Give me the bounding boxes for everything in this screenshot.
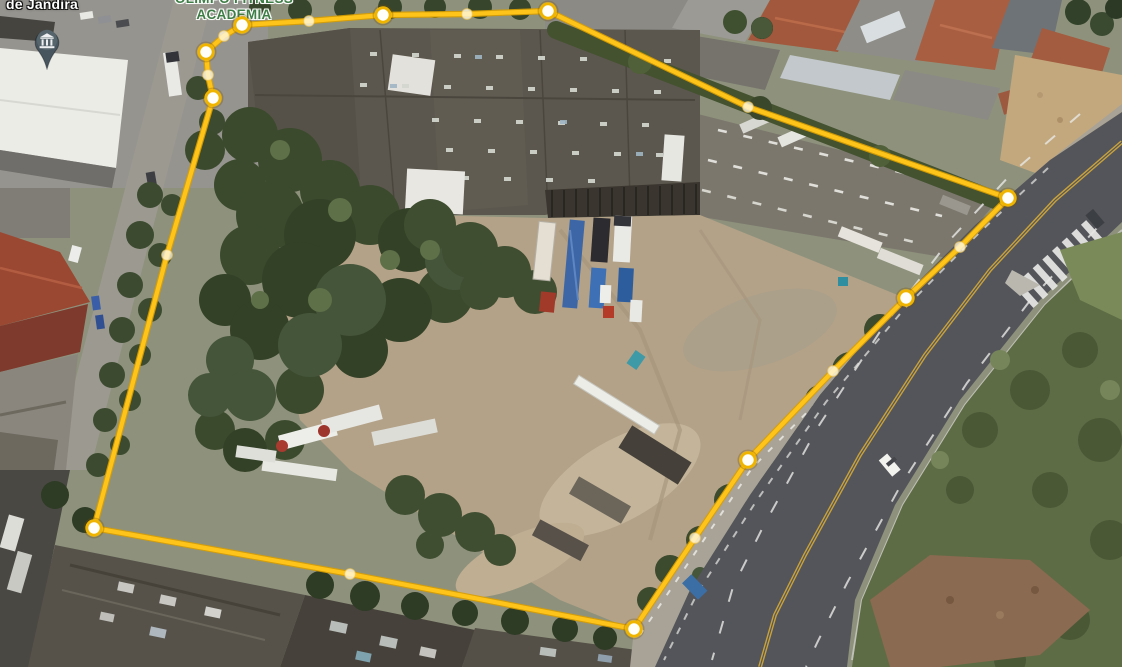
polygon-midpoint-handle[interactable] — [955, 242, 966, 253]
polygon-vertex-handle[interactable] — [1001, 191, 1015, 205]
polygon-vertex-handle[interactable] — [376, 8, 390, 22]
polygon-midpoint-handle[interactable] — [162, 250, 173, 261]
polygon-vertex-handle[interactable] — [627, 622, 641, 636]
polygon-midpoint-handle[interactable] — [203, 70, 214, 81]
aerial-map-viewport: de Jandira OLIMPO FITNESS ACADEMIA — [0, 0, 1122, 667]
polygon-midpoint-handle[interactable] — [219, 31, 230, 42]
polygon-vertex-handle[interactable] — [199, 45, 213, 59]
polygon-vertex-handle[interactable] — [87, 521, 101, 535]
measurement-polygon-outline[interactable] — [94, 11, 1008, 629]
polygon-vertex-handle[interactable] — [206, 91, 220, 105]
polygon-midpoint-handle[interactable] — [690, 533, 701, 544]
polygon-midpoint-handle[interactable] — [828, 366, 839, 377]
polygon-midpoint-handle[interactable] — [304, 16, 315, 27]
measurement-overlay — [0, 0, 1122, 667]
polygon-midpoint-handle[interactable] — [462, 9, 473, 20]
polygon-midpoint-handle[interactable] — [743, 102, 754, 113]
polygon-vertex-handle[interactable] — [541, 4, 555, 18]
polygon-vertex-handle[interactable] — [235, 18, 249, 32]
polygon-outline-edge — [94, 11, 1008, 629]
polygon-midpoint-handle[interactable] — [345, 569, 356, 580]
polygon-vertex-handle[interactable] — [741, 453, 755, 467]
polygon-vertex-handle[interactable] — [899, 291, 913, 305]
